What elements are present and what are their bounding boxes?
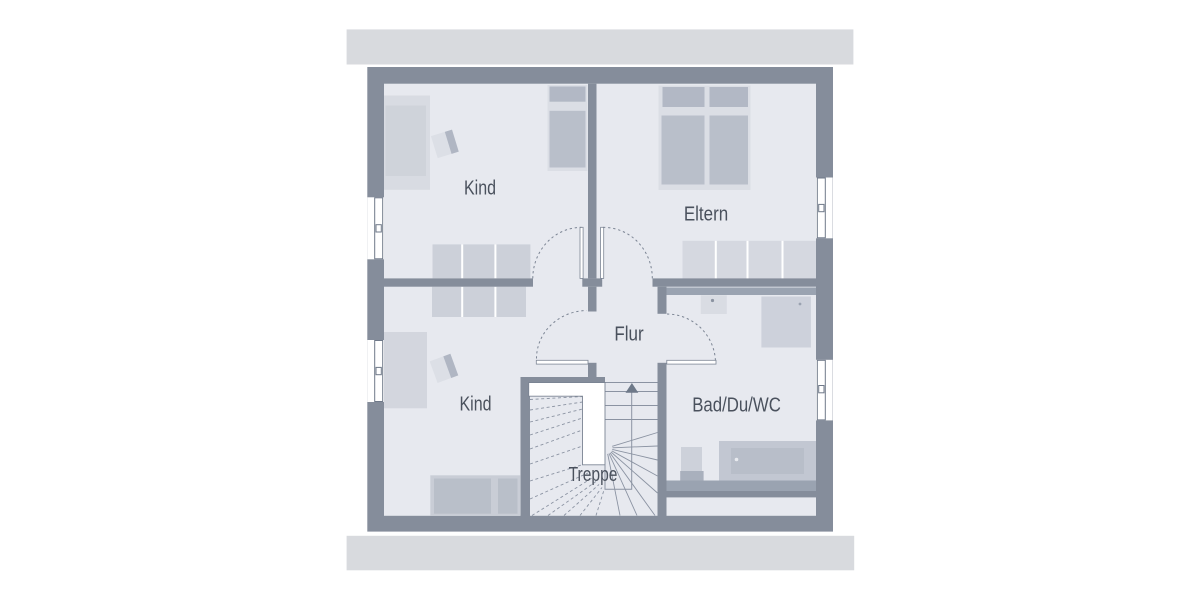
svg-text:Kind: Kind <box>464 177 496 199</box>
svg-text:Bad/Du/WC: Bad/Du/WC <box>692 393 781 416</box>
svg-text:Kind: Kind <box>459 393 491 415</box>
svg-text:Flur: Flur <box>614 322 643 345</box>
svg-text:Eltern: Eltern <box>684 202 728 225</box>
svg-text:Treppe: Treppe <box>569 463 618 485</box>
